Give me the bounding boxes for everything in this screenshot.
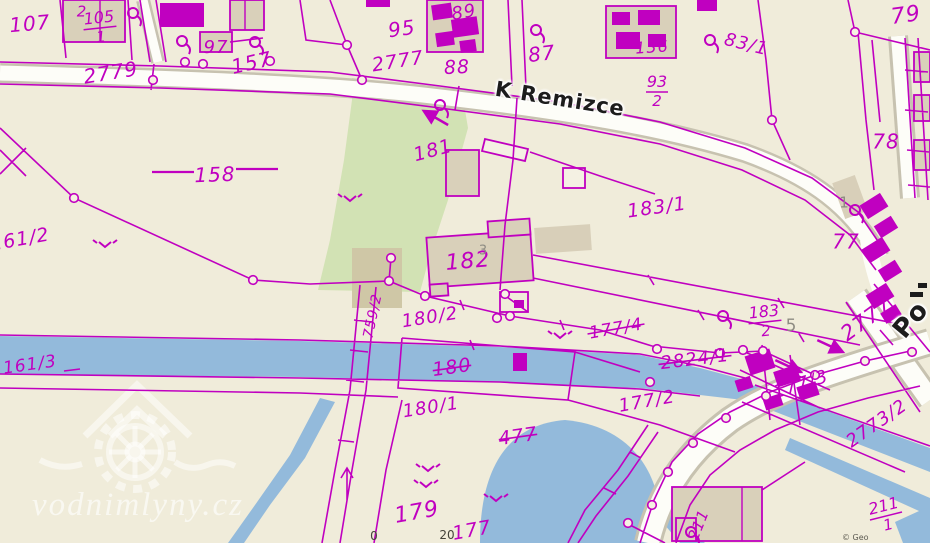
building — [914, 52, 930, 82]
building-solid — [366, 0, 390, 7]
building — [430, 283, 449, 296]
survey-node — [385, 277, 394, 286]
survey-node — [759, 347, 768, 356]
survey-node — [648, 501, 657, 510]
survey-node — [664, 468, 673, 477]
survey-node — [851, 28, 860, 37]
parcel-label: 87 — [527, 40, 557, 67]
building-solid — [160, 3, 204, 27]
fraction-numerator: 183 — [748, 301, 780, 323]
cadastral-map-viewport: 1072972779157158952777888987181183/183/1… — [0, 0, 930, 543]
fraction-numerator: 105 — [83, 7, 115, 29]
survey-node — [421, 292, 430, 301]
building-solid — [638, 10, 660, 25]
survey-node — [506, 312, 515, 321]
building — [534, 224, 592, 254]
parcel-label: 136 — [635, 36, 670, 57]
survey-node — [387, 254, 396, 263]
survey-node — [908, 348, 917, 357]
survey-node — [861, 357, 870, 366]
parcel-label: 79 — [889, 1, 922, 30]
survey-node — [653, 345, 662, 354]
parcel-label: 77 — [832, 230, 859, 254]
building-solid — [697, 0, 717, 11]
survey-node — [70, 194, 79, 203]
parcel-label: 97 — [204, 37, 229, 58]
fraction-denominator: 1 — [95, 28, 106, 47]
building — [487, 219, 530, 238]
survey-node — [343, 41, 352, 50]
survey-node — [768, 116, 777, 125]
survey-node — [199, 60, 208, 69]
survey-node — [739, 346, 748, 355]
house-number-gray: 3 — [479, 244, 487, 259]
parcel-label: 89 — [450, 0, 478, 25]
parcel-label: 95 — [387, 15, 418, 43]
fraction-denominator: 2 — [652, 92, 662, 110]
survey-node — [646, 378, 655, 387]
parcel-label: 88 — [443, 56, 470, 79]
survey-node — [493, 314, 502, 323]
fraction-denominator: 2 — [760, 322, 771, 341]
building — [563, 168, 585, 188]
survey-node — [762, 392, 771, 401]
cadastral-map-canvas: 1072972779157158952777888987181183/183/1… — [0, 0, 930, 543]
survey-node — [358, 76, 367, 85]
survey-node — [624, 519, 633, 528]
building-solid — [435, 31, 455, 47]
survey-node — [722, 414, 731, 423]
fraction-numerator: 93 — [647, 72, 667, 91]
building — [914, 140, 930, 170]
parcel-label: 78 — [872, 130, 899, 154]
building — [230, 0, 264, 30]
building-solid — [612, 12, 630, 25]
parcel-label: 158 — [194, 162, 236, 187]
survey-node — [181, 58, 190, 67]
house-number-gray: 5 — [786, 316, 797, 336]
survey-node — [249, 276, 258, 285]
building-solid — [513, 353, 527, 371]
survey-node — [149, 76, 158, 85]
parcel-label: 107 — [8, 10, 51, 37]
building-solid — [459, 39, 477, 53]
house-number-gray: 1 — [839, 194, 849, 212]
survey-node — [689, 439, 698, 448]
survey-node — [501, 290, 510, 299]
